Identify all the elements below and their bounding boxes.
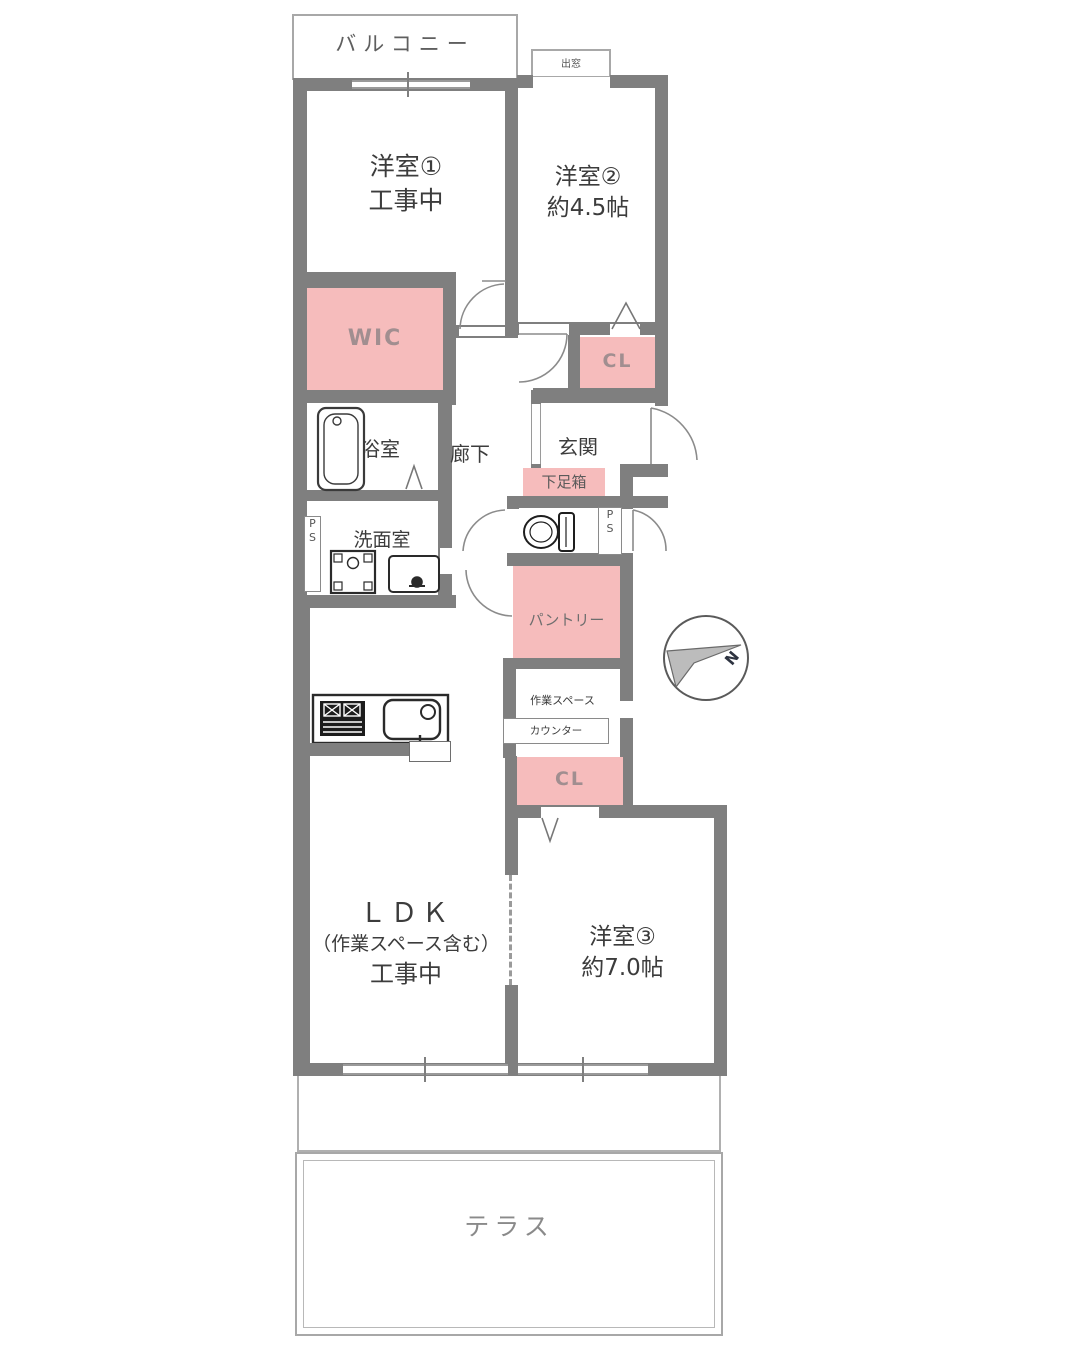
wall bbox=[517, 75, 533, 88]
kitchen-sink-icon bbox=[384, 700, 440, 739]
wall-room3-right bbox=[714, 805, 727, 1075]
ps-letter: P bbox=[309, 517, 316, 530]
wall-room3-top bbox=[622, 805, 727, 818]
wall-washroom-bottom bbox=[293, 595, 456, 608]
shoe-box-label: 下足箱 bbox=[523, 472, 605, 492]
utility-door-arc bbox=[633, 510, 666, 551]
room1-door-opening bbox=[459, 327, 505, 336]
room3-size: 約7.0帖 bbox=[530, 953, 715, 984]
closet-lower-label: CL bbox=[517, 767, 623, 793]
ps-letter: S bbox=[309, 531, 316, 544]
stove-icon bbox=[320, 701, 365, 736]
wall-room3-left-a bbox=[505, 817, 518, 875]
room3-label: 洋室③ 約7.0帖 bbox=[530, 922, 715, 984]
closet-lower-opening bbox=[541, 807, 599, 818]
closet-upper-label: CL bbox=[580, 349, 655, 375]
wall-wic-right bbox=[443, 288, 456, 405]
wall-room1-room2 bbox=[505, 78, 518, 325]
wall-slit bbox=[620, 701, 633, 718]
room2-door-opening bbox=[519, 324, 569, 335]
room2-door-arc bbox=[519, 334, 567, 382]
ps-letter: S bbox=[607, 522, 614, 535]
wall-bath-bottom bbox=[306, 490, 444, 501]
hall-ldk-door-arc bbox=[466, 570, 512, 616]
washstand-icon bbox=[389, 556, 439, 592]
wall bbox=[568, 335, 580, 390]
room1-label: 洋室① 工事中 bbox=[306, 150, 506, 218]
wall-pantry-bottom bbox=[505, 658, 633, 669]
entrance-label: 玄関 bbox=[528, 434, 628, 461]
ldk-name: ＬＤＫ bbox=[300, 896, 512, 932]
work-space-label: 作業スペース bbox=[505, 694, 620, 709]
balcony-window bbox=[352, 80, 470, 89]
toilet-door-arc bbox=[463, 510, 505, 551]
room2-label: 洋室② 約4.5帖 bbox=[520, 162, 656, 224]
ldk-label: ＬＤＫ （作業スペース含む） 工事中 bbox=[300, 896, 512, 990]
room2-size: 約4.5帖 bbox=[520, 193, 656, 224]
wall-toilet-top bbox=[507, 496, 668, 508]
wall-right-upper bbox=[655, 75, 668, 406]
ldk-note: （作業スペース含む） bbox=[300, 932, 512, 958]
ps-letter: P bbox=[607, 508, 614, 521]
room1-door-arc bbox=[460, 281, 506, 329]
bay-window-label: 出窓 bbox=[531, 58, 611, 72]
room2-name: 洋室② bbox=[520, 162, 656, 193]
wall-room3-left-b bbox=[505, 985, 518, 1075]
wall bbox=[505, 756, 517, 807]
ldk-status: 工事中 bbox=[300, 958, 512, 990]
compass-north-label: N bbox=[721, 648, 743, 669]
counter-label: カウンター bbox=[503, 724, 609, 738]
ldk-window bbox=[343, 1064, 508, 1075]
compass-icon: N bbox=[664, 616, 748, 700]
washing-machine-icon bbox=[331, 551, 375, 593]
washroom-label: 洗面室 bbox=[320, 528, 444, 554]
pipe-space-left: P S bbox=[304, 516, 321, 592]
folding-door-mark bbox=[406, 466, 422, 489]
wall-step bbox=[620, 464, 668, 477]
toilet-icon bbox=[524, 513, 574, 551]
balcony-label: バルコニー bbox=[292, 30, 518, 58]
wall bbox=[503, 658, 516, 718]
folding-door-mark bbox=[542, 818, 558, 841]
closet-door-opening bbox=[610, 324, 640, 335]
corridor-label: 廊下 bbox=[435, 441, 505, 468]
wall-wic-top bbox=[293, 272, 456, 288]
terrace-inner bbox=[303, 1160, 715, 1328]
pipe-space-right: P S bbox=[598, 507, 622, 555]
wic-label: WIC bbox=[307, 324, 443, 354]
garden-strip bbox=[297, 1076, 721, 1152]
room1-name: 洋室① bbox=[306, 150, 506, 184]
kitchen-cabinet bbox=[409, 741, 451, 762]
bath-label: 浴室 bbox=[330, 436, 430, 463]
wall-left-lower bbox=[293, 605, 310, 1075]
room3-window bbox=[518, 1064, 648, 1075]
room1-status: 工事中 bbox=[306, 184, 506, 218]
wall-entrance-top bbox=[533, 388, 668, 403]
kitchen-base bbox=[308, 743, 409, 756]
floor-plan: バルコニー 出窓 CL WIC P S P bbox=[0, 0, 1080, 1350]
toilet-door-opening bbox=[507, 509, 519, 553]
wall-wic-bottom bbox=[293, 390, 456, 403]
pantry-label: パントリー bbox=[513, 610, 620, 630]
room3-name: 洋室③ bbox=[530, 922, 715, 953]
front-door-arc bbox=[651, 408, 697, 464]
terrace-label: テラス bbox=[295, 1210, 723, 1244]
